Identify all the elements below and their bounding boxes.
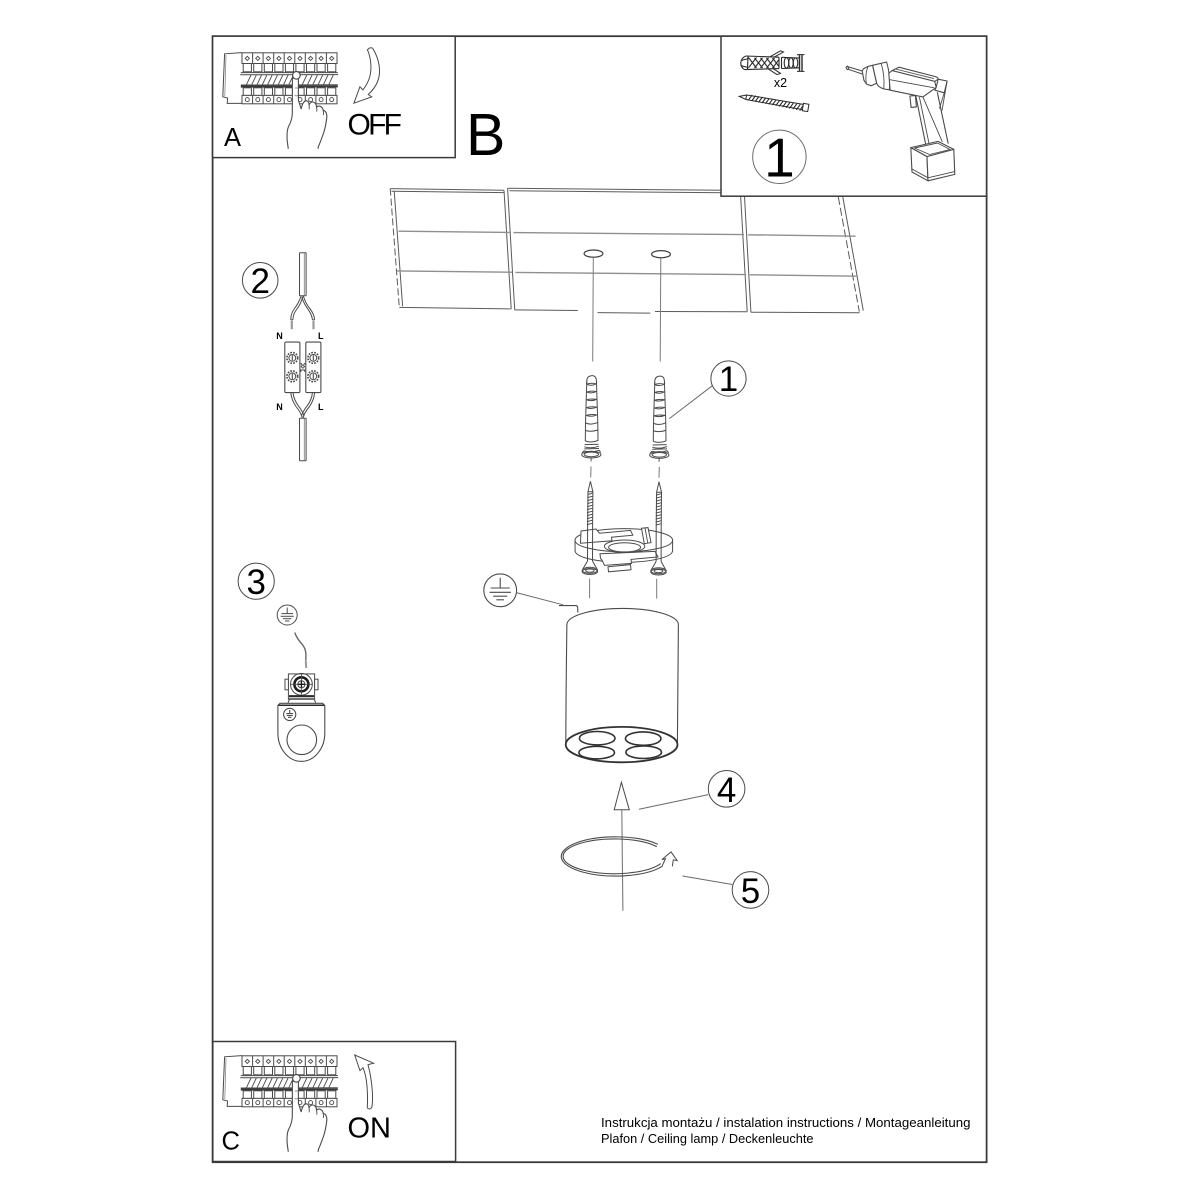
svg-text:OFF: OFF — [348, 109, 403, 142]
svg-text:Plafon / Ceiling lamp / Decken: Plafon / Ceiling lamp / Deckenleuchte — [601, 1131, 814, 1146]
svg-text:A: A — [224, 124, 241, 152]
svg-text:5: 5 — [741, 872, 760, 911]
svg-text:4: 4 — [717, 771, 736, 810]
svg-text:1: 1 — [764, 127, 795, 189]
svg-text:ON: ON — [348, 1113, 392, 1145]
svg-text:N: N — [276, 331, 283, 341]
svg-text:C: C — [222, 1128, 240, 1156]
svg-text:L: L — [318, 331, 324, 341]
svg-text:L: L — [318, 402, 324, 412]
svg-text:3: 3 — [246, 563, 265, 602]
svg-text:x2: x2 — [774, 76, 787, 90]
svg-text:2: 2 — [250, 262, 269, 301]
svg-text:B: B — [466, 102, 505, 168]
svg-text:1: 1 — [719, 360, 738, 399]
svg-text:Instrukcja montażu / instalati: Instrukcja montażu / instalation instruc… — [601, 1115, 971, 1130]
svg-text:N: N — [276, 402, 283, 412]
